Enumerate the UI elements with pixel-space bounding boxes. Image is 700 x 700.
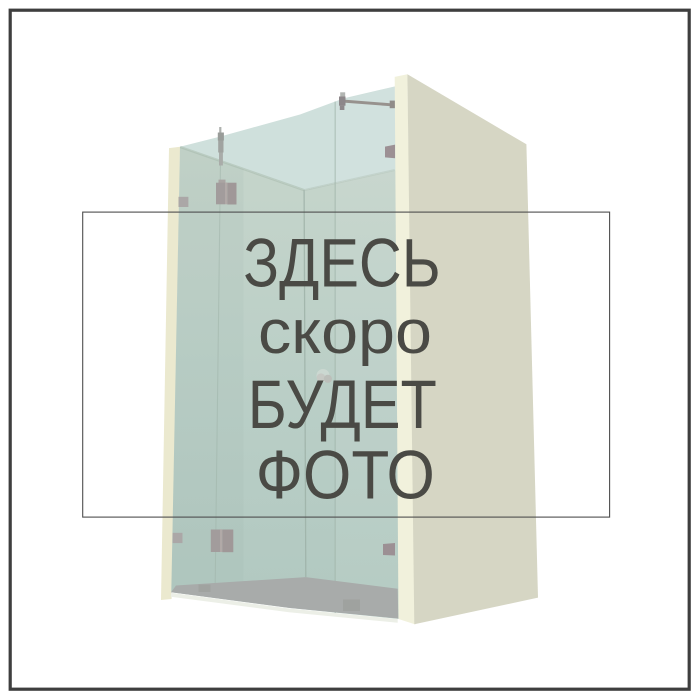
svg-text:ФОТО: ФОТО [256,436,435,513]
svg-text:скоро: скоро [258,298,432,367]
svg-text:ЗДЕСЬ: ЗДЕСЬ [243,224,441,301]
svg-text:БУДЕТ: БУДЕТ [248,366,437,443]
